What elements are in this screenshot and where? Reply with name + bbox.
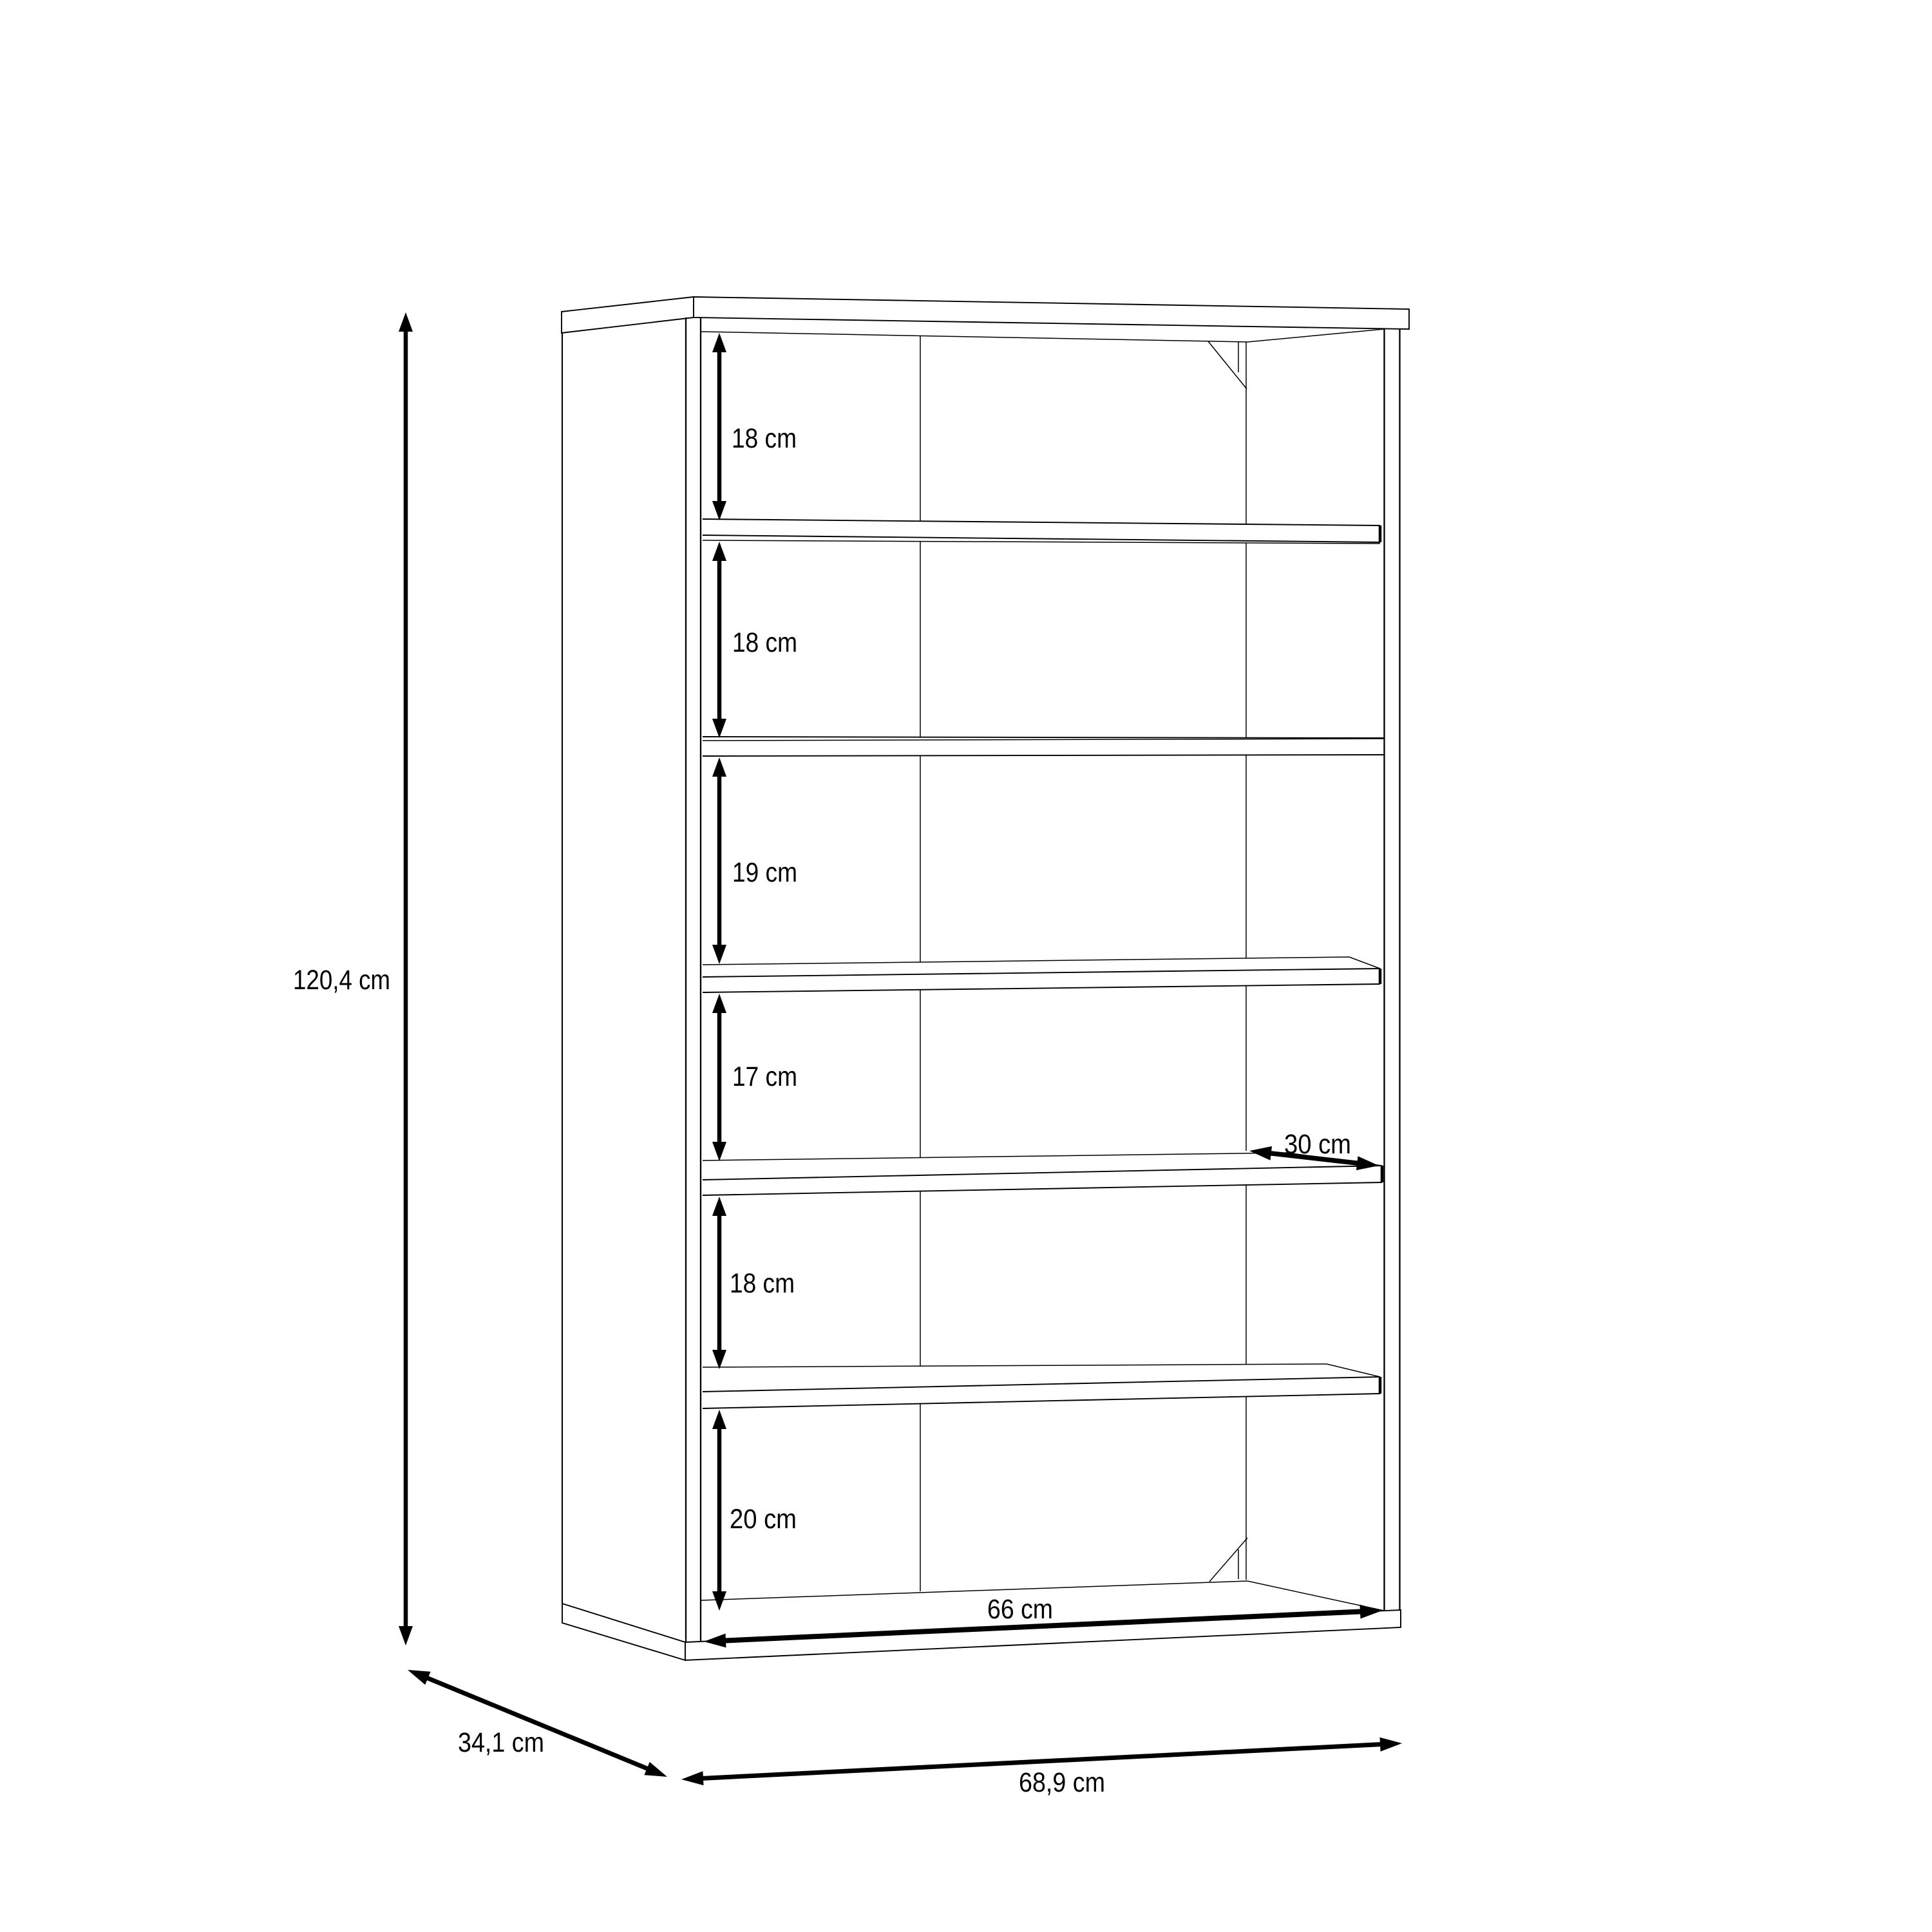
svg-text:30 cm: 30 cm <box>1284 1129 1351 1160</box>
svg-text:19 cm: 19 cm <box>732 857 797 888</box>
svg-text:68,9 cm: 68,9 cm <box>1019 1767 1105 1798</box>
svg-text:120,4 cm: 120,4 cm <box>293 965 390 996</box>
svg-text:20 cm: 20 cm <box>730 1504 797 1535</box>
svg-text:17 cm: 17 cm <box>732 1061 797 1092</box>
svg-text:18 cm: 18 cm <box>732 423 797 454</box>
svg-text:66 cm: 66 cm <box>987 1594 1053 1625</box>
svg-text:34,1 cm: 34,1 cm <box>458 1727 544 1758</box>
svg-text:18 cm: 18 cm <box>732 627 797 658</box>
svg-text:18 cm: 18 cm <box>730 1268 795 1299</box>
